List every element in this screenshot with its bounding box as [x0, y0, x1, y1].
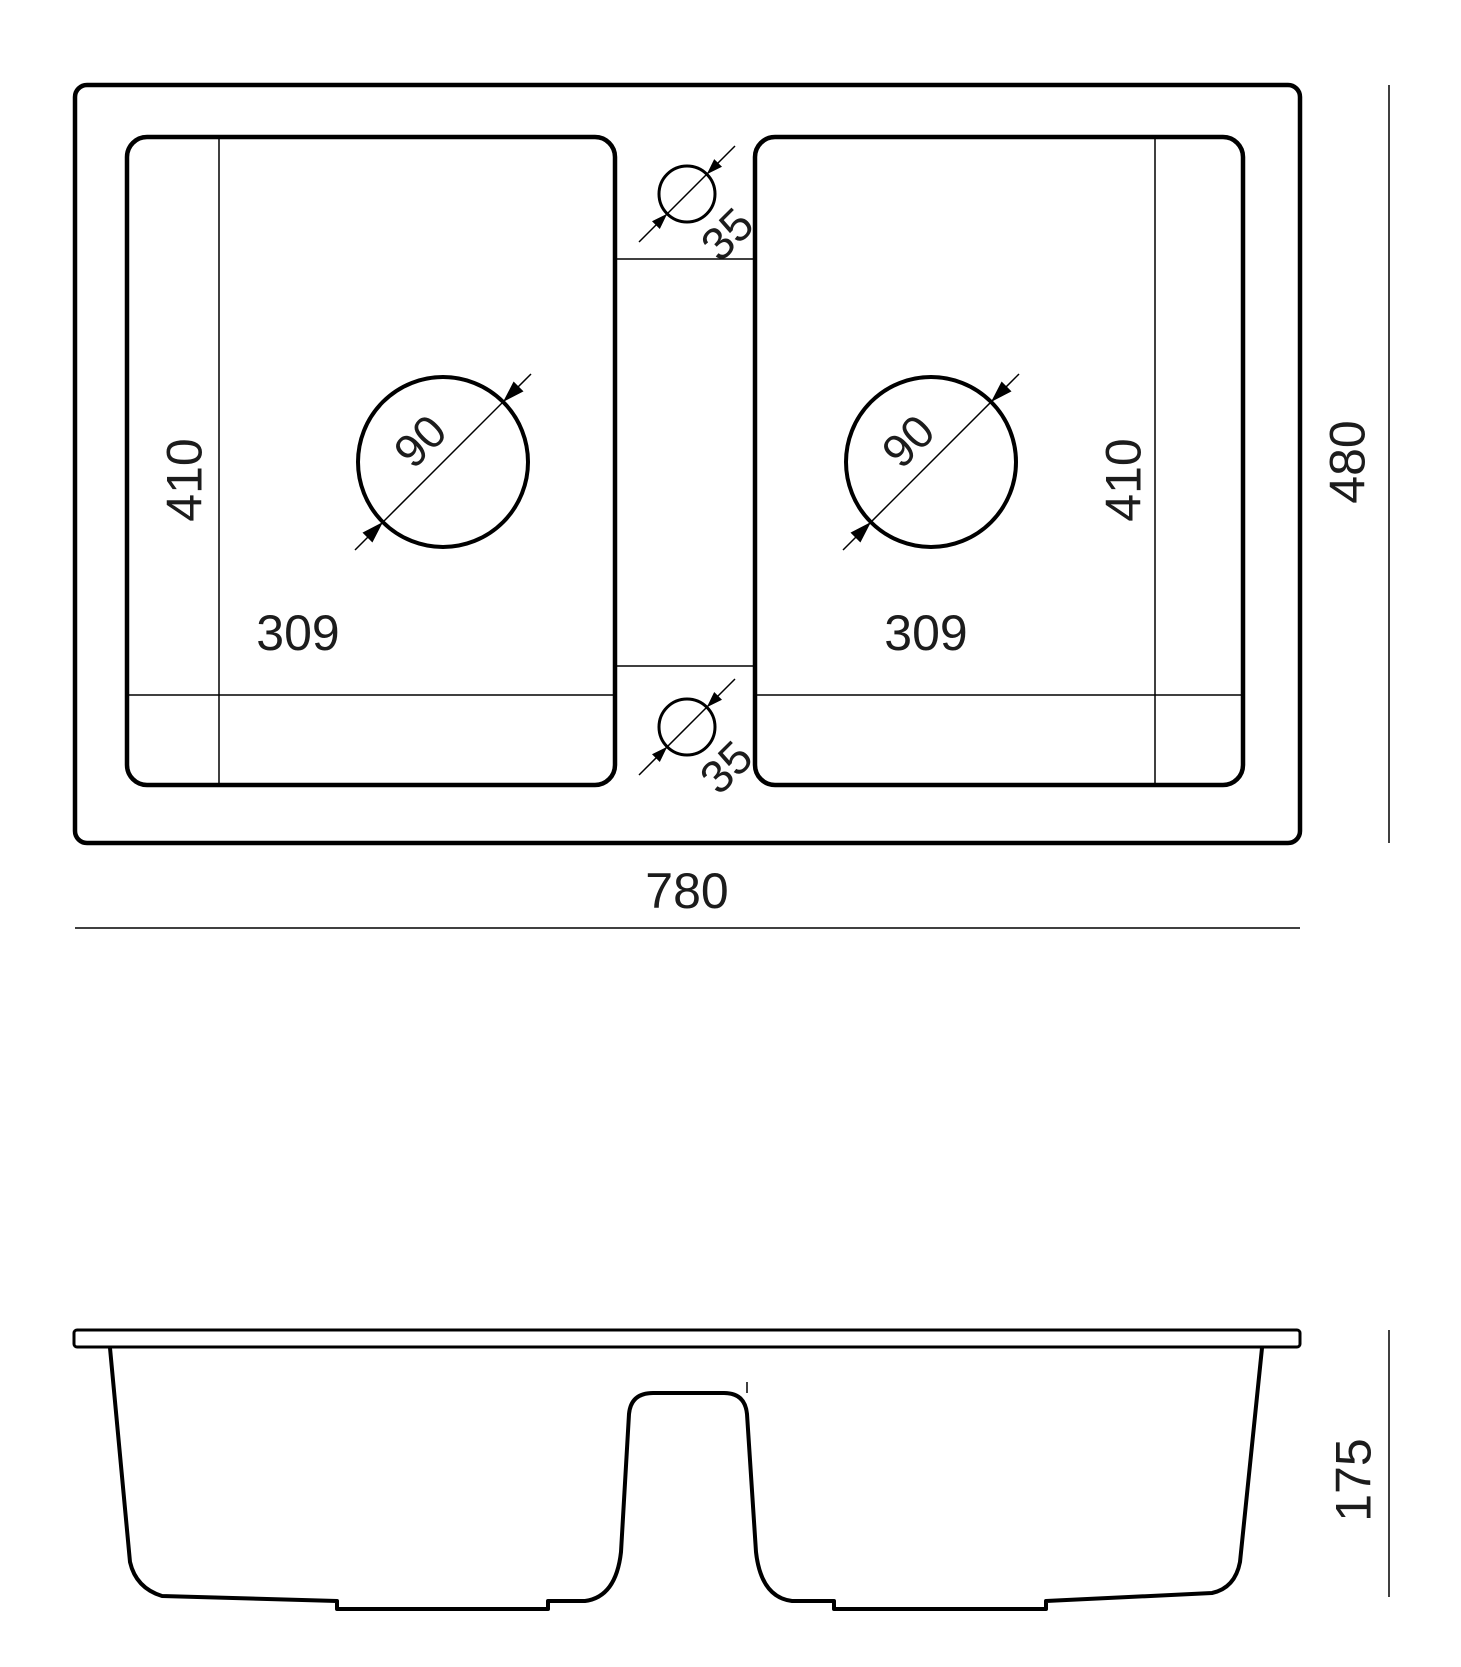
height-dimension: 175	[1326, 1330, 1390, 1597]
left-bowl-width-label: 309	[256, 605, 339, 661]
front-rim	[74, 1330, 1300, 1347]
front-view: 175	[74, 1330, 1389, 1609]
top-view: 90 90 35 35 410 410 309	[75, 85, 1389, 928]
left-drain-hole: 90	[355, 374, 531, 550]
overall-width-dimension: 780	[75, 863, 1300, 928]
drawing-canvas: 90 90 35 35 410 410 309	[0, 0, 1461, 1667]
tap-hole-bottom-label: 35	[690, 731, 763, 804]
overall-depth-label: 480	[1320, 420, 1376, 503]
right-bowl-depth-label: 410	[1096, 438, 1152, 521]
front-body-outline	[110, 1348, 1262, 1609]
right-drain-diameter-label: 90	[872, 405, 945, 478]
tap-hole-top: 35	[639, 146, 764, 271]
left-bowl-depth-label: 410	[157, 438, 213, 521]
right-bowl-width-label: 309	[884, 605, 967, 661]
right-bowl-outline	[755, 137, 1243, 785]
right-drain-hole: 90	[843, 374, 1019, 550]
overall-width-label: 780	[645, 863, 728, 919]
left-drain-diameter-label: 90	[384, 405, 457, 478]
overall-depth-dimension: 480	[1320, 85, 1390, 843]
tap-hole-bottom: 35	[639, 679, 763, 804]
height-label: 175	[1326, 1438, 1382, 1521]
